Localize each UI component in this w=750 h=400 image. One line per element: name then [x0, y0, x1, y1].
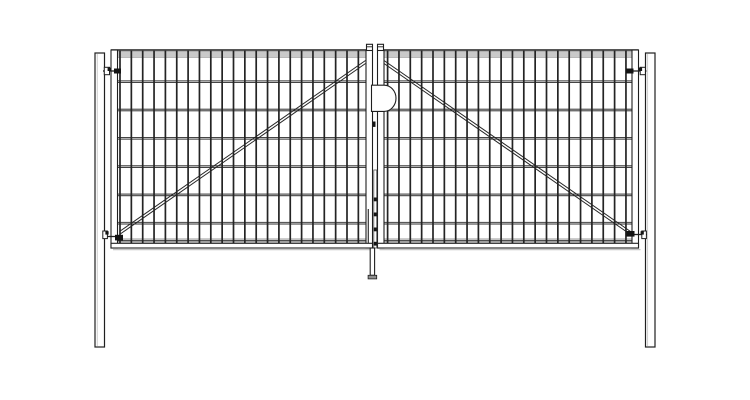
- gate-lock-plate: [372, 85, 397, 111]
- bottom-left-hinge-frame-block: [115, 235, 123, 241]
- top-left-hinge-frame-block: [114, 69, 121, 74]
- bottom-left-hinge-nub: [105, 231, 108, 234]
- double-leaf-mesh-gate-drawing: [0, 0, 750, 400]
- leaf-bottom-tube: [111, 243, 373, 248]
- top-left-hinge-nub: [108, 68, 111, 71]
- lock-latch-bolt: [373, 122, 376, 127]
- center-stile-cap-body: [367, 44, 373, 50]
- center-stile-cap: [367, 44, 373, 50]
- center-stile-cap-body: [378, 44, 384, 50]
- gate-drawing-canvas: [0, 0, 750, 400]
- top-right-hinge-nub: [639, 68, 642, 71]
- leaf-frame-stile: [111, 50, 118, 248]
- latch-guide-mark: [374, 228, 377, 232]
- leaf-frame-stile: [366, 50, 373, 248]
- latch-shaft: [374, 170, 377, 248]
- leaf-frame-stile: [632, 50, 639, 248]
- latch-guide-mark: [374, 213, 377, 217]
- right-fence-post-body: [646, 53, 656, 347]
- left-fence-post: [95, 53, 105, 347]
- latch-guide-mark: [374, 198, 377, 202]
- drop-rod-foot: [368, 275, 377, 279]
- right-fence-post: [646, 53, 656, 347]
- bottom-right-hinge-frame-block: [626, 231, 634, 237]
- latch-guide-mark: [374, 242, 377, 246]
- top-right-hinge-frame-block: [626, 69, 634, 74]
- center-stile-cap: [378, 44, 384, 50]
- left-fence-post-body: [95, 53, 105, 347]
- leaf-bottom-tube: [378, 243, 639, 248]
- bottom-right-hinge-nub: [641, 231, 644, 234]
- drop-rod: [370, 248, 374, 275]
- leaf-frame-stile: [378, 50, 385, 248]
